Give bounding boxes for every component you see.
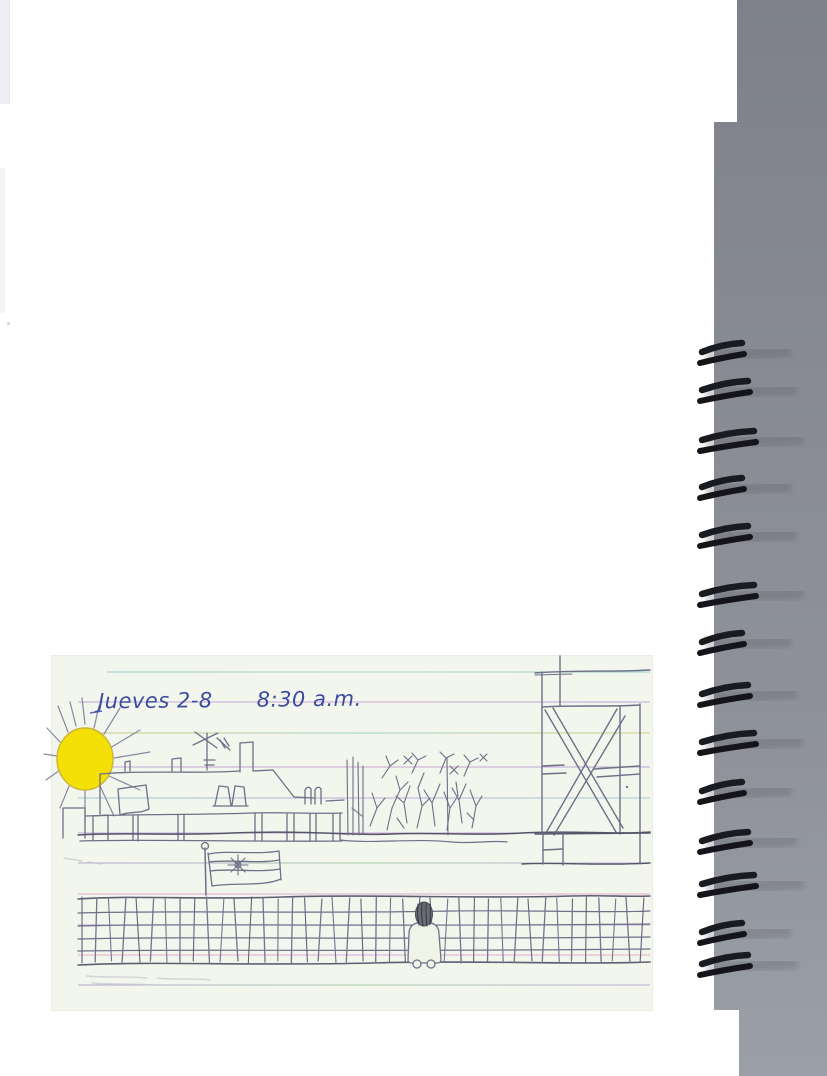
sun-drawing [44, 698, 150, 822]
watchtower-drawing [535, 656, 650, 865]
spiral-binding [688, 328, 827, 988]
ink-dash [90, 711, 102, 713]
bush-drawing [347, 752, 487, 835]
spiral-coil-group [700, 343, 803, 975]
page-edge-artifact [0, 168, 5, 313]
scanned-notebook-page: Jueves 2-8 8:30 a.m. [0, 0, 827, 1076]
page-edge-artifact [0, 0, 10, 104]
pencil-drawing [52, 656, 652, 1010]
low-wall-drawing [63, 808, 342, 841]
tv-antenna-drawing [193, 732, 230, 770]
star-flag-drawing [202, 843, 282, 896]
fence-wires [82, 897, 644, 963]
rooftops-drawing [100, 742, 344, 814]
scan-speck [7, 322, 10, 325]
small-flag-drawing [118, 785, 149, 815]
drawing-card: Jueves 2-8 8:30 a.m. [52, 656, 652, 1010]
flag-star [228, 855, 248, 875]
ground-line [78, 832, 650, 864]
pencil-dot [626, 786, 628, 788]
